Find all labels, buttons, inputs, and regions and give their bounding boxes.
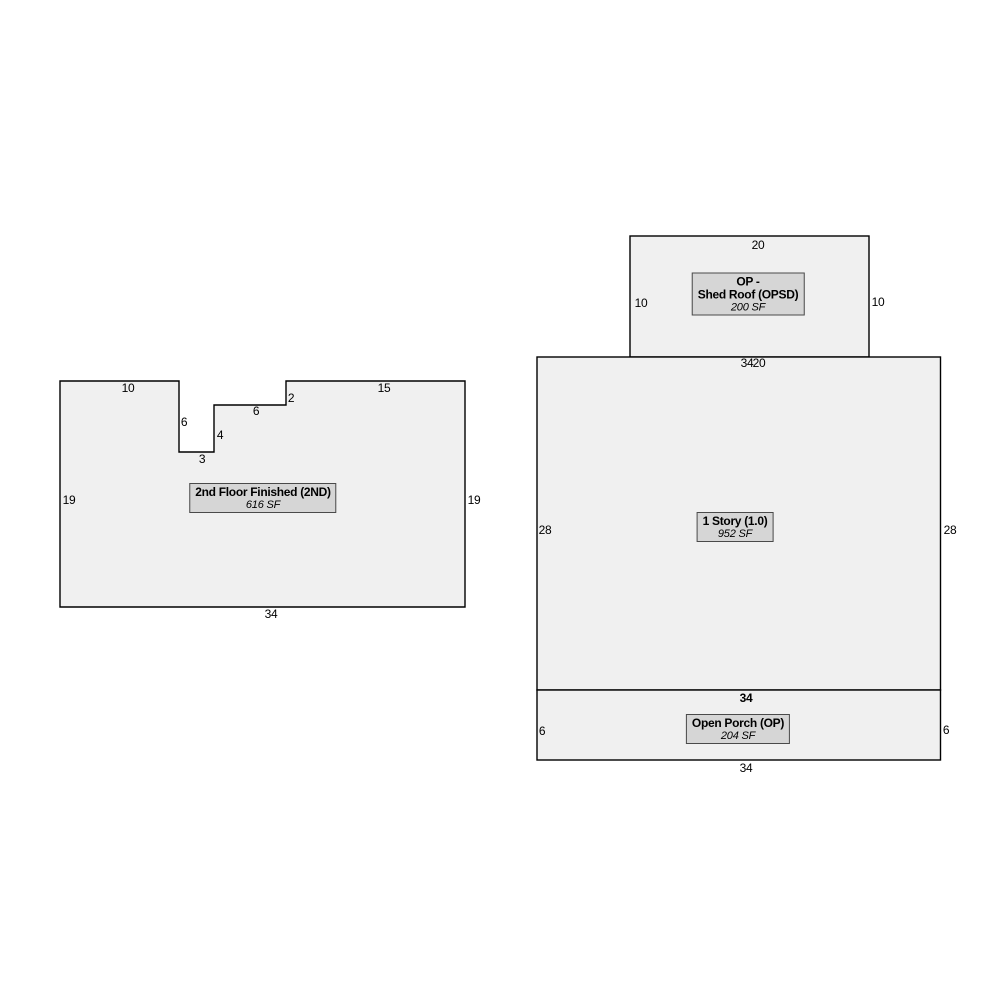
dim-shed-bottom: 20 (753, 357, 766, 369)
second-floor-label-box: 2nd Floor Finished (2ND) 616 SF (189, 483, 336, 513)
one-story-title: 1 Story (1.0) (703, 515, 768, 528)
dim-2nd-top-right: 15 (378, 382, 391, 394)
dim-2nd-notch-top: 6 (253, 405, 259, 417)
one-story-label-box: 1 Story (1.0) 952 SF (697, 512, 774, 542)
one-story-area: 952 SF (703, 528, 768, 540)
dim-porch-right: 6 (943, 724, 949, 736)
dim-2nd-notch-step: 2 (288, 392, 294, 404)
dim-shed-left: 10 (635, 297, 648, 309)
open-porch-area: 204 SF (692, 730, 784, 742)
second-floor-title: 2nd Floor Finished (2ND) (195, 486, 330, 499)
dim-2nd-bottom: 34 (265, 608, 278, 620)
dim-2nd-top-left: 10 (122, 382, 135, 394)
shed-roof-area: 200 SF (698, 302, 799, 314)
dim-1story-right: 28 (944, 524, 957, 536)
dim-2nd-notch-left: 6 (181, 416, 187, 428)
dim-2nd-right: 19 (468, 494, 481, 506)
dim-shed-top: 20 (752, 239, 765, 251)
shed-roof-label-box: OP - Shed Roof (OPSD) 200 SF (692, 273, 805, 316)
dim-1story-left: 28 (539, 524, 552, 536)
dim-1story-top: 34 (741, 357, 754, 369)
dim-2nd-left: 19 (63, 494, 76, 506)
second-floor-area: 616 SF (195, 499, 330, 511)
dim-2nd-notch-right: 4 (217, 429, 223, 441)
shed-roof-title-line2: Shed Roof (OPSD) (698, 289, 799, 302)
sketch-shapes (0, 0, 1000, 1000)
open-porch-title: Open Porch (OP) (692, 717, 784, 730)
dim-2nd-notch-bottom: 3 (199, 453, 205, 465)
dim-shed-right: 10 (872, 296, 885, 308)
sketch-canvas: 10 6 4 3 6 2 15 19 19 34 20 10 10 20 34 … (0, 0, 1000, 1000)
dim-1story-bottom: 34 (740, 692, 753, 704)
open-porch-label-box: Open Porch (OP) 204 SF (686, 714, 790, 744)
dim-porch-bottom: 34 (740, 762, 753, 774)
dim-porch-left: 6 (539, 725, 545, 737)
